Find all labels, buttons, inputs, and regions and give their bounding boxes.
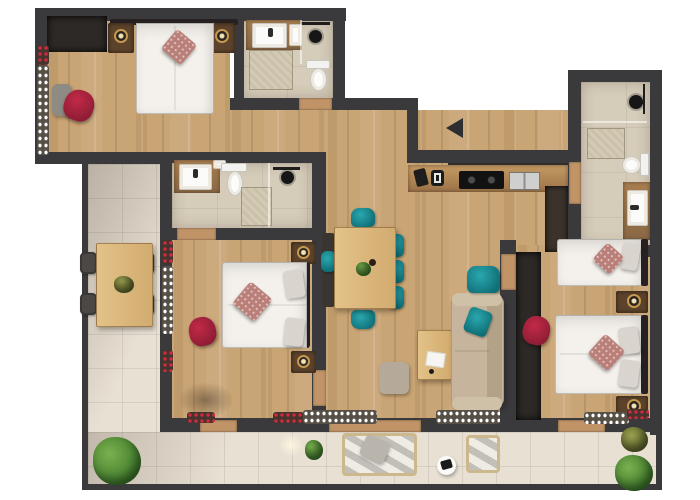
flower-box-terrace-red-2	[162, 350, 173, 372]
door-bedroom-2	[313, 370, 326, 406]
flower-box-south-white-1	[303, 410, 377, 424]
coffee-table-papers	[425, 351, 446, 368]
flower-box-south-red-2	[273, 412, 304, 423]
flower-box-south-red-3	[627, 409, 649, 419]
terrace-plant-right-big	[615, 455, 653, 491]
dining-chair-bottom	[351, 310, 375, 329]
flower-box-south-white-3	[584, 412, 629, 424]
bathroom-3-shower-glass	[583, 121, 647, 123]
kitchen-cooktop	[459, 171, 504, 189]
wall-bath3-north	[568, 70, 662, 82]
kitchen-sink	[509, 172, 540, 190]
wall-bath2-east	[312, 152, 326, 240]
bedroom-2-lamp-top	[297, 246, 310, 259]
bedroom-2-gray-pillow-2	[283, 317, 306, 347]
bathroom-3-mat	[587, 128, 625, 159]
bedroom-3-gray-pillow-b2	[617, 359, 641, 389]
bathroom-3-shower-head	[629, 95, 643, 109]
bedroom-3-lamp-1	[627, 294, 641, 308]
bathroom-3-faucet	[630, 205, 639, 210]
sofa-armrest-bottom	[452, 397, 502, 410]
bathroom-1-mat	[249, 50, 293, 90]
bedroom-1-lamp-left	[114, 29, 128, 43]
living-pouf	[379, 362, 409, 394]
bedroom-3-headboard-1	[641, 239, 648, 286]
terrace-plant-small	[305, 440, 323, 460]
living-teal-armchair	[467, 266, 500, 293]
wall-right	[650, 70, 662, 435]
bathroom-2-shower-bar	[273, 167, 300, 170]
bathroom-2-shower-head	[281, 171, 294, 184]
wall-bedroom1-south	[35, 152, 172, 164]
bathroom-2-shower-glass	[268, 163, 270, 227]
flower-box-west-white-1	[37, 65, 49, 155]
door-bathroom-3	[569, 162, 581, 204]
flower-box-south-white-2	[436, 410, 500, 424]
terrace-table-plant	[114, 276, 134, 293]
bathroom-3-shower-bar	[643, 84, 645, 114]
sofa-seam	[455, 350, 489, 352]
sofa-armrest-top	[452, 293, 502, 306]
bathroom-3-toilet-bowl	[622, 156, 641, 174]
bathroom-1-shower-head	[309, 30, 322, 43]
dining-table-bottle	[369, 259, 376, 266]
bathroom-3-toilet-tank	[640, 153, 649, 176]
bedroom-2-gray-pillow-1	[282, 269, 306, 300]
rail-terrace-left	[82, 164, 88, 490]
bathroom-1-shower-glass	[300, 20, 302, 64]
wall-bath1-east	[333, 8, 345, 110]
floor-plan	[0, 0, 700, 500]
entrance-arrow-icon	[446, 118, 463, 138]
wall-bath1-west	[234, 13, 244, 105]
terrace-light-glow	[278, 434, 304, 456]
wall-entry-south	[407, 150, 577, 163]
terrace-outdoor-chair	[466, 435, 500, 473]
coffee-table-dot	[429, 369, 434, 374]
rail-terrace-right	[656, 430, 662, 490]
bathroom-1-shower-bar	[302, 22, 330, 25]
terrace-bush-left	[93, 437, 141, 485]
bedroom-1-wardrobe	[47, 16, 107, 52]
flower-box-terrace-white	[162, 266, 173, 334]
door-bedroom-3	[501, 254, 516, 290]
door-bathroom-1	[299, 98, 332, 110]
door-bathroom-2	[177, 228, 216, 240]
rail-terrace-bottom	[82, 484, 662, 490]
terrace-plant-right-small	[621, 427, 648, 452]
bedroom-2-lamp-bottom	[297, 355, 310, 368]
dining-chair-top	[351, 208, 375, 227]
terrace-chair-2	[80, 293, 97, 315]
flower-box-south-red-1	[187, 412, 215, 423]
terrace-chair-1	[80, 252, 97, 274]
flower-box-west-red-1	[37, 45, 49, 65]
bathroom-1-toilet-bowl	[310, 68, 327, 91]
flower-box-terrace-red	[162, 240, 173, 264]
bathroom-2-faucet	[193, 169, 198, 178]
bedroom-3-headboard-2	[641, 315, 648, 394]
kitchen-kettle	[431, 170, 444, 186]
bathroom-1-faucet	[268, 28, 273, 37]
bedroom-1-lamp-right	[215, 29, 229, 43]
